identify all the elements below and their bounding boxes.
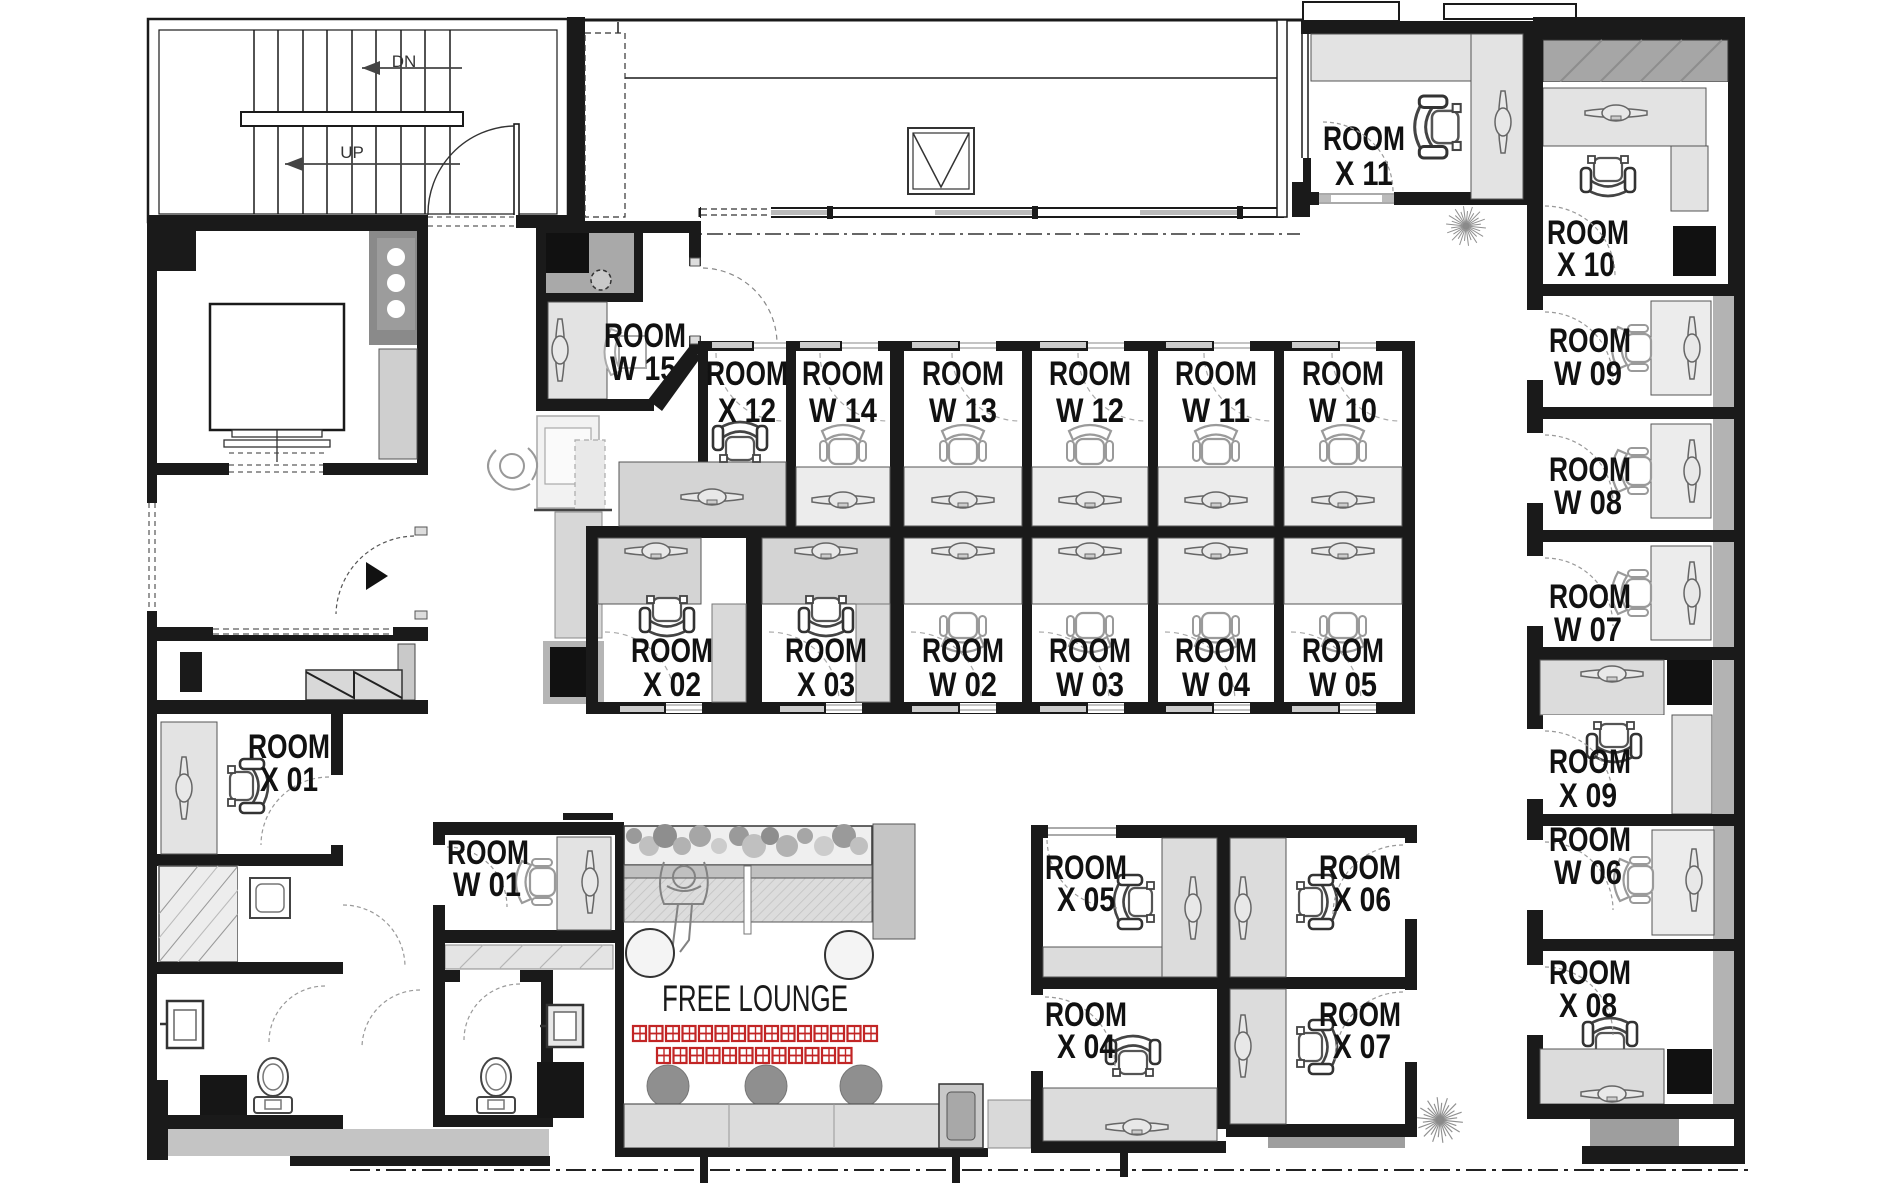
svg-text:W 07: W 07 [1554, 611, 1622, 649]
svg-text:X 07: X 07 [1333, 1028, 1391, 1066]
svg-text:X 03: X 03 [797, 666, 855, 704]
svg-text:ROOM: ROOM [1302, 632, 1384, 670]
svg-text:ROOM: ROOM [1049, 355, 1131, 393]
svg-text:W 02: W 02 [929, 666, 997, 704]
svg-text:W 14: W 14 [809, 392, 877, 430]
svg-text:X 01: X 01 [260, 761, 318, 799]
svg-text:DN: DN [392, 52, 417, 71]
svg-text:X 05: X 05 [1057, 881, 1115, 919]
svg-text:ROOM: ROOM [785, 632, 867, 670]
svg-text:ROOM: ROOM [1175, 355, 1257, 393]
svg-text:W 12: W 12 [1056, 392, 1124, 430]
svg-text:ROOM: ROOM [631, 632, 713, 670]
svg-text:W 10: W 10 [1309, 392, 1377, 430]
svg-text:W 04: W 04 [1182, 666, 1250, 704]
svg-text:W 01: W 01 [453, 866, 521, 904]
svg-text:ROOM: ROOM [1323, 120, 1405, 158]
svg-text:W 13: W 13 [929, 392, 997, 430]
svg-text:X 08: X 08 [1559, 987, 1617, 1025]
svg-text:W 05: W 05 [1309, 666, 1377, 704]
svg-text:ROOM: ROOM [802, 355, 884, 393]
svg-text:FREE LOUNGE: FREE LOUNGE [662, 978, 848, 1019]
svg-text:ROOM: ROOM [922, 632, 1004, 670]
svg-text:X 10: X 10 [1557, 246, 1615, 284]
svg-text:ROOM: ROOM [922, 355, 1004, 393]
svg-text:X 06: X 06 [1333, 881, 1391, 919]
svg-text:X 02: X 02 [643, 666, 701, 704]
svg-text:X 04: X 04 [1057, 1028, 1115, 1066]
svg-text:W 09: W 09 [1554, 355, 1622, 393]
svg-text:ROOM: ROOM [1302, 355, 1384, 393]
svg-text:UP: UP [340, 143, 364, 162]
svg-text:ROOM: ROOM [1175, 632, 1257, 670]
svg-text:ROOM: ROOM [706, 355, 788, 393]
svg-text:ROOM: ROOM [1549, 743, 1631, 781]
svg-text:W 11: W 11 [1182, 392, 1250, 430]
svg-text:X 12: X 12 [718, 392, 776, 430]
svg-text:W 06: W 06 [1554, 854, 1622, 892]
svg-text:X 09: X 09 [1559, 777, 1617, 815]
svg-text:ROOM: ROOM [1049, 632, 1131, 670]
svg-text:W 08: W 08 [1554, 484, 1622, 522]
svg-text:W 03: W 03 [1056, 666, 1124, 704]
svg-text:X 11: X 11 [1335, 155, 1393, 193]
